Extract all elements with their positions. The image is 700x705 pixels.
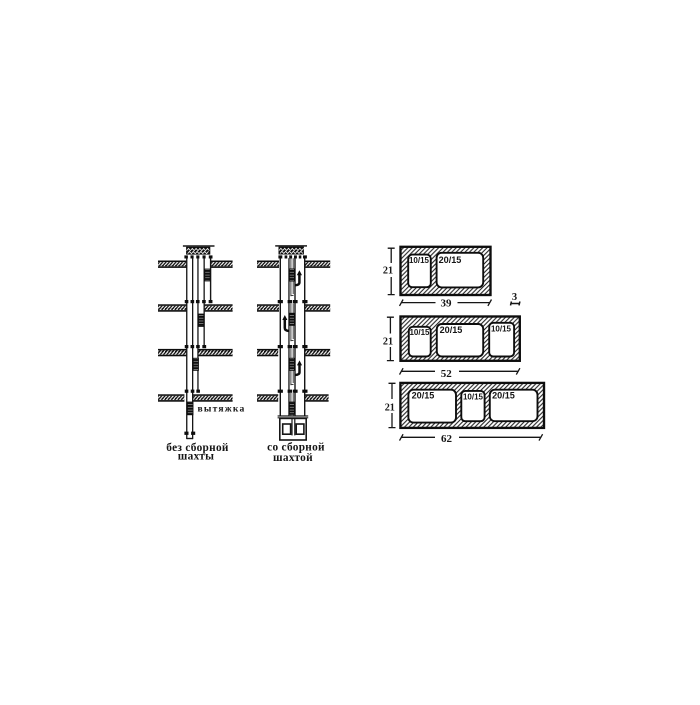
svg-text:10/15: 10/15 <box>463 393 484 402</box>
svg-text:39: 39 <box>441 298 453 310</box>
svg-text:вытяжка: вытяжка <box>198 404 246 415</box>
svg-text:10/15: 10/15 <box>409 256 430 265</box>
svg-text:20/15: 20/15 <box>439 255 462 265</box>
svg-text:10/15: 10/15 <box>409 328 430 337</box>
svg-text:20/15: 20/15 <box>492 391 515 401</box>
svg-text:21: 21 <box>383 336 393 347</box>
svg-text:шахты: шахты <box>178 451 214 463</box>
svg-text:10/15: 10/15 <box>491 325 512 334</box>
svg-text:20/15: 20/15 <box>440 325 463 335</box>
svg-text:20/15: 20/15 <box>412 391 435 401</box>
svg-text:52: 52 <box>441 368 453 380</box>
svg-text:3: 3 <box>512 292 517 303</box>
svg-text:62: 62 <box>441 433 453 445</box>
svg-text:шахтой: шахтой <box>273 452 313 464</box>
svg-text:21: 21 <box>383 266 393 277</box>
svg-text:21: 21 <box>385 403 395 414</box>
